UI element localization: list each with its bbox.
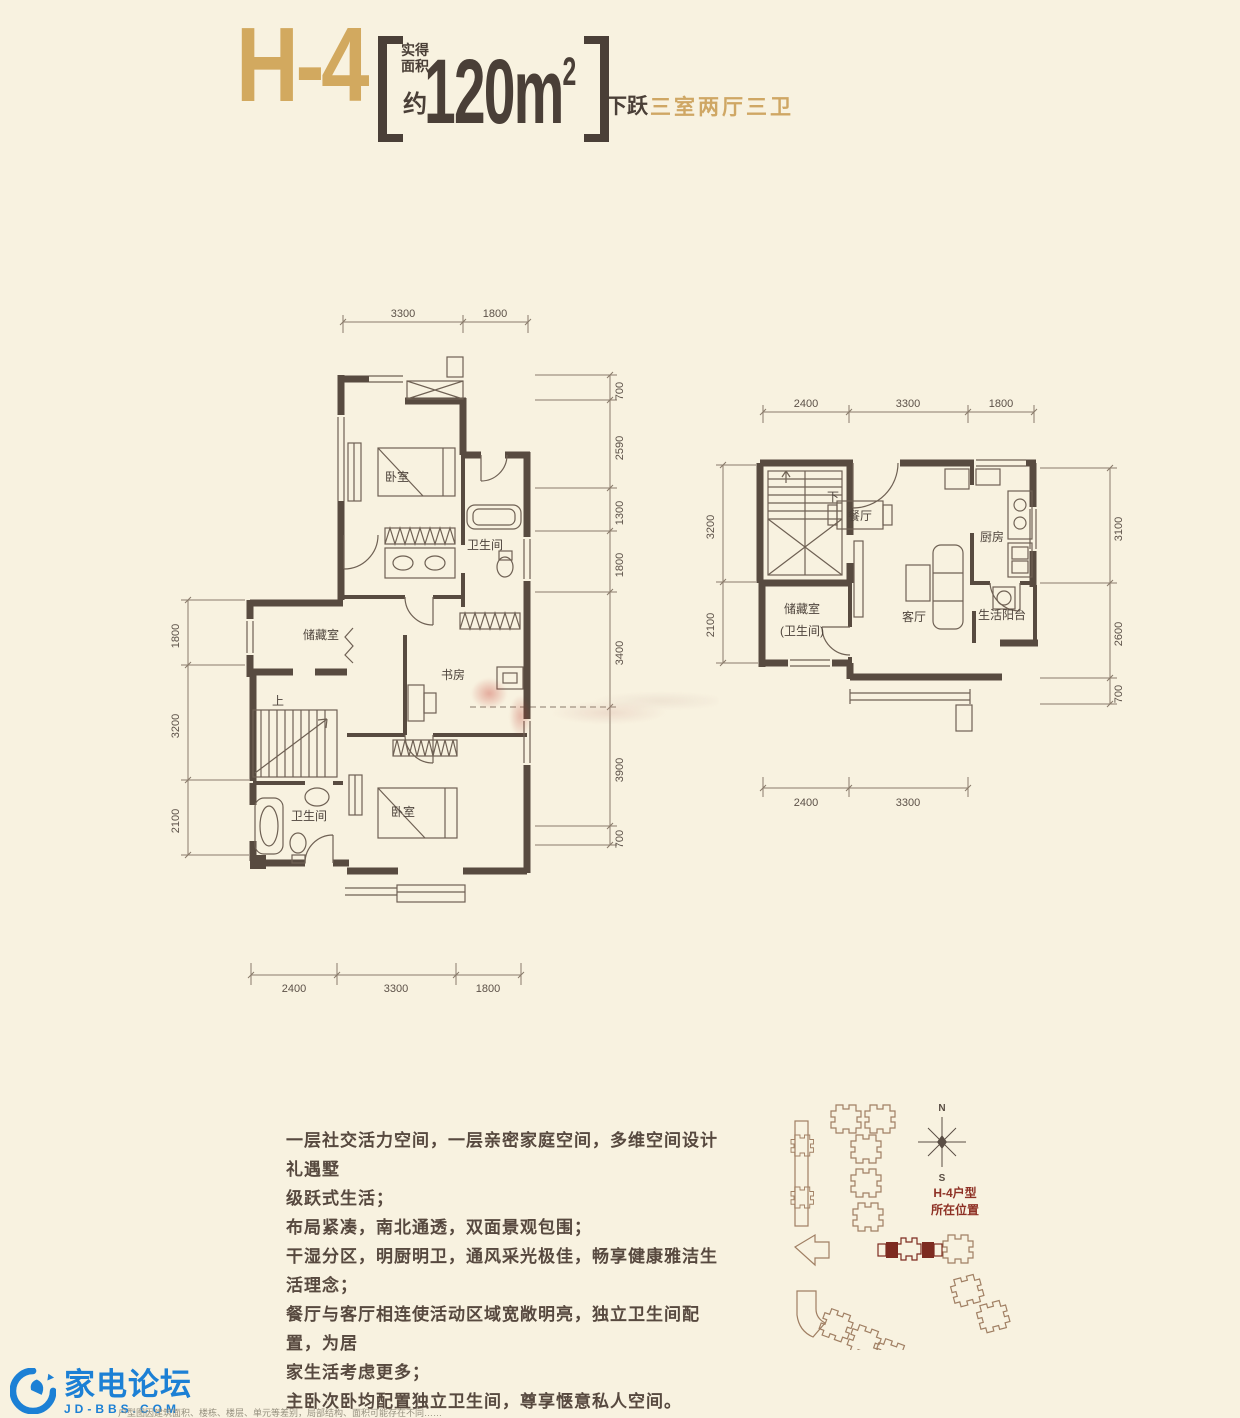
fixtures	[247, 357, 530, 902]
compass	[918, 1117, 966, 1167]
highlighted-building	[878, 1238, 942, 1260]
dim-right: 2600	[1113, 622, 1125, 646]
dim-bottom: 1800	[476, 983, 500, 995]
room-label-kitchen: 厨房	[980, 529, 1004, 544]
dim-top: 1800	[483, 308, 507, 320]
room-label-storage: 储藏室	[303, 627, 339, 642]
dim-bottom: 3300	[896, 797, 920, 809]
room-label-bedroom: 卧室	[385, 469, 409, 484]
stairs-down-label: 下	[827, 490, 839, 504]
close-bracket	[584, 36, 609, 142]
description-line: 一层社交活力空间，一层亲密家庭空间，多维空间设计礼遇墅	[286, 1126, 726, 1184]
description-line: 餐厅与客厅相连使活动区域宽敞明亮，独立卫生间配置，为居	[286, 1300, 726, 1358]
room-label-storage-bath: (卫生间)	[780, 624, 824, 638]
dim-bottom: 3300	[384, 983, 408, 995]
compass-north-label: N	[938, 1103, 945, 1114]
room-labels: 下 餐厅 厨房 储藏室 (卫生间) 客厅 生活阳台	[780, 490, 1026, 638]
dim-left: 3200	[170, 714, 182, 738]
description-line: 家生活考虑更多；	[286, 1358, 726, 1387]
lower-floor-plan: 3300 1800 2400 3300 1800 1800 3200 2100 …	[165, 295, 665, 1005]
dim-right: 700	[614, 830, 626, 848]
room-label-bathroom: 卫生间	[291, 809, 327, 823]
logo-brand: 家电论坛	[64, 1368, 192, 1401]
room-label-storage: 储藏室	[784, 601, 820, 616]
unit-location-line2: 所在位置	[931, 1202, 979, 1217]
dim-right: 700	[614, 382, 626, 400]
dim-top: 3300	[391, 308, 415, 320]
dim-left: 2100	[170, 809, 182, 833]
room-label-study: 书房	[441, 667, 465, 682]
unit-location-label: H-4户型 所在位置	[931, 1185, 979, 1217]
area-number: 120m	[424, 41, 562, 143]
upper-floor-plan: 2400 3300 1800 2400 3300 3200 2100 3100 …	[690, 385, 1170, 815]
description-line: 干湿分区，明厨明卫，通风采光极佳，畅享健康雅洁生活理念；	[286, 1242, 726, 1300]
dim-top: 2400	[794, 398, 818, 410]
area-superscript: 2	[562, 50, 574, 94]
disclaimer-text: 户型图因建筑面积、楼栋、楼层、单元等差别，局部结构、面积可能存在不同……	[118, 1406, 1238, 1418]
compass-south-label: S	[939, 1173, 946, 1184]
dim-left: 2100	[705, 613, 717, 637]
dim-top: 1800	[989, 398, 1013, 410]
room-label-bedroom: 卧室	[391, 804, 415, 819]
dim-top: 3300	[896, 398, 920, 410]
room-label-bathroom: 卫生间	[467, 538, 503, 552]
building-outlines	[791, 1105, 1011, 1350]
dim-right: 1800	[614, 553, 626, 577]
unit-title: H-4	[236, 10, 366, 120]
interior-walls	[253, 455, 527, 783]
site-location-map: N S H-4户型 所在位置	[775, 1095, 1035, 1350]
dim-right: 3400	[614, 641, 626, 665]
duplex-tag: 下跃	[606, 90, 648, 120]
dim-left: 1800	[170, 624, 182, 648]
room-count-tag: 三室两厅三卫	[650, 91, 794, 121]
description-line: 布局紧凑，南北通透，双面景观包围；	[286, 1213, 726, 1242]
room-label-dining: 餐厅	[848, 508, 872, 523]
dim-right: 2590	[614, 436, 626, 460]
room-label-balcony: 生活阳台	[978, 607, 1026, 622]
room-label-living: 客厅	[902, 609, 926, 624]
dim-bottom: 2400	[794, 797, 818, 809]
room-labels: 卧室 卫生间 储藏室 书房 上 卫生间 卧室	[272, 469, 503, 823]
fixtures	[768, 460, 1036, 731]
unit-location-line1: H-4户型	[933, 1185, 976, 1200]
dim-right: 3100	[1113, 517, 1125, 541]
dim-right: 3900	[614, 758, 626, 782]
description-block: 一层社交活力空间，一层亲密家庭空间，多维空间设计礼遇墅 级跃式生活； 布局紧凑，…	[286, 1126, 726, 1416]
area-value: 120m2	[424, 22, 574, 142]
jd-bbs-logo-icon	[10, 1368, 56, 1414]
stairs-up-label: 上	[272, 694, 284, 708]
dim-right: 700	[1113, 685, 1125, 703]
dim-bottom: 2400	[282, 983, 306, 995]
description-line: 级跃式生活；	[286, 1184, 726, 1213]
wall-pillar	[250, 855, 266, 869]
dim-right: 1300	[614, 501, 626, 525]
dim-left: 3200	[705, 515, 717, 539]
floorplan-page: H-4 实得 面积 约 120m2 下跃 三室两厅三卫 3300 18	[0, 0, 1240, 1418]
